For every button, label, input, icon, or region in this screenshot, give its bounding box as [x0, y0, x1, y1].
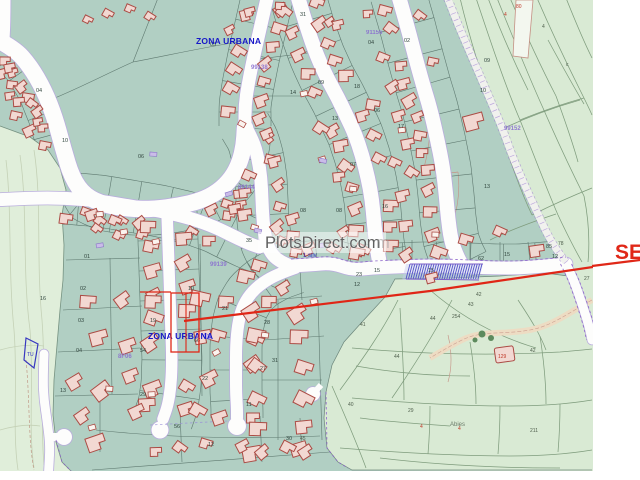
svg-text:31: 31 — [300, 12, 306, 18]
svg-text:ZONA URBANA: ZONA URBANA — [196, 36, 261, 46]
svg-text:22: 22 — [202, 376, 208, 382]
svg-text:16: 16 — [382, 204, 388, 210]
svg-text:91155: 91155 — [366, 30, 383, 36]
svg-text:54: 54 — [140, 348, 146, 354]
svg-text:35: 35 — [246, 238, 252, 244]
svg-text:45: 45 — [300, 436, 306, 442]
svg-text:4: 4 — [542, 24, 545, 30]
svg-text:02: 02 — [80, 286, 86, 292]
svg-text:ZONA URBANA: ZONA URBANA — [148, 331, 213, 341]
svg-text:13: 13 — [484, 184, 490, 190]
svg-text:99138: 99138 — [251, 65, 268, 71]
svg-text:13: 13 — [60, 388, 66, 394]
svg-text:89144: 89144 — [238, 185, 255, 191]
svg-text:11: 11 — [246, 402, 252, 408]
svg-text:19: 19 — [150, 318, 156, 324]
svg-text:62: 62 — [478, 256, 484, 262]
svg-text:30: 30 — [286, 436, 292, 442]
svg-text:10: 10 — [188, 286, 194, 292]
svg-text:29: 29 — [408, 408, 414, 414]
svg-text:80: 80 — [516, 4, 522, 10]
svg-text:29: 29 — [140, 392, 146, 398]
svg-text:42: 42 — [476, 292, 482, 298]
svg-text:10: 10 — [480, 88, 486, 94]
svg-text:8F06: 8F06 — [118, 354, 132, 360]
svg-text:28: 28 — [264, 320, 270, 326]
svg-text:31: 31 — [272, 358, 278, 364]
svg-text:40: 40 — [348, 402, 354, 408]
svg-text:18: 18 — [354, 84, 360, 90]
svg-text:14: 14 — [290, 90, 296, 96]
svg-text:23: 23 — [356, 272, 362, 278]
svg-text:254: 254 — [452, 314, 461, 320]
svg-text:99152: 99152 — [504, 126, 521, 132]
svg-text:09: 09 — [318, 80, 324, 86]
svg-text:17: 17 — [398, 124, 404, 130]
svg-text:27: 27 — [584, 276, 590, 282]
svg-text:42: 42 — [530, 348, 536, 354]
svg-text:99139: 99139 — [210, 262, 227, 268]
svg-text:27: 27 — [260, 366, 266, 372]
svg-text:SE: SE — [615, 241, 640, 264]
svg-text:06: 06 — [138, 154, 144, 160]
svg-text:15: 15 — [504, 252, 510, 258]
svg-text:16: 16 — [40, 296, 46, 302]
svg-text:1 silv: 1 silv — [303, 253, 317, 259]
svg-text:07: 07 — [350, 162, 356, 168]
svg-text:PlotsDirect.com: PlotsDirect.com — [265, 234, 381, 252]
svg-text:211: 211 — [530, 428, 538, 434]
svg-text:56: 56 — [174, 424, 180, 430]
svg-text:21: 21 — [222, 306, 228, 312]
svg-text:TU: TU — [27, 352, 34, 358]
svg-text:12: 12 — [208, 442, 214, 448]
svg-text:04: 04 — [368, 40, 374, 46]
svg-text:44: 44 — [394, 354, 400, 360]
svg-text:15: 15 — [428, 268, 434, 274]
svg-text:08: 08 — [300, 208, 306, 214]
svg-text:04: 04 — [76, 348, 82, 354]
svg-text:12: 12 — [354, 282, 360, 288]
svg-text:09: 09 — [484, 58, 490, 64]
svg-text:01: 01 — [84, 254, 90, 260]
svg-text:43: 43 — [468, 302, 474, 308]
svg-text:4: 4 — [504, 12, 507, 18]
svg-text:06: 06 — [374, 108, 380, 114]
svg-text:12: 12 — [552, 254, 558, 260]
svg-text:44: 44 — [430, 316, 436, 322]
svg-text:129: 129 — [498, 354, 507, 360]
svg-text:13: 13 — [332, 116, 338, 122]
svg-text:78: 78 — [558, 241, 564, 247]
svg-text:02: 02 — [404, 38, 410, 44]
svg-text:85: 85 — [546, 244, 552, 250]
svg-text:10: 10 — [62, 138, 68, 144]
svg-text:15: 15 — [374, 268, 380, 274]
svg-text:08: 08 — [336, 208, 342, 214]
svg-text:41: 41 — [360, 322, 366, 328]
svg-text:03: 03 — [78, 318, 84, 324]
svg-text:m: m — [376, 234, 390, 252]
svg-text:4: 4 — [420, 424, 423, 430]
svg-text:04: 04 — [36, 88, 42, 94]
svg-text:4: 4 — [458, 426, 461, 432]
